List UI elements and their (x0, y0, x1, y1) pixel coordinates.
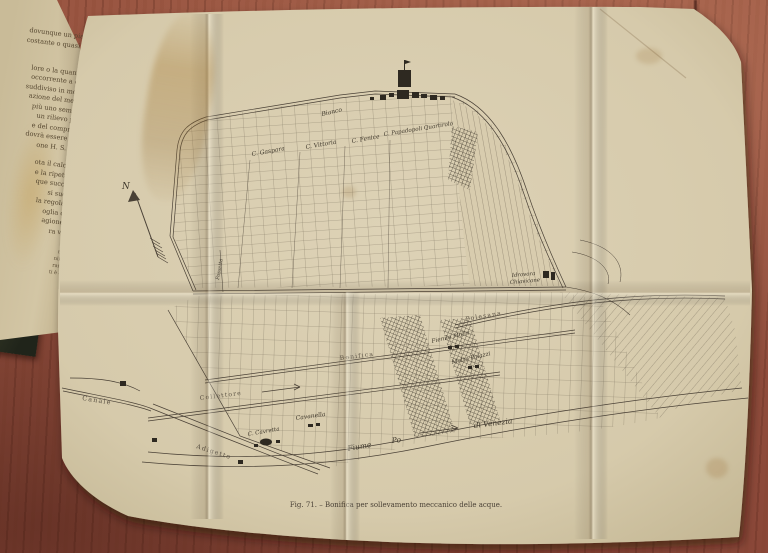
foxing-spot (636, 48, 662, 64)
foxing-spot (342, 186, 356, 198)
foxing-spot (706, 458, 728, 478)
figure-caption: Fig. 71. – Bonifica per sollevamento mec… (290, 501, 502, 509)
foldout-plate: N Bianco C. Gaspara C. Vittoria C. Fenic… (0, 0, 768, 553)
photo-of-book-foldout-map: dovunque un piano costante o quasi), il … (0, 0, 768, 553)
compass-n-label: N (121, 182, 131, 192)
river-label-po: Po (390, 435, 402, 445)
